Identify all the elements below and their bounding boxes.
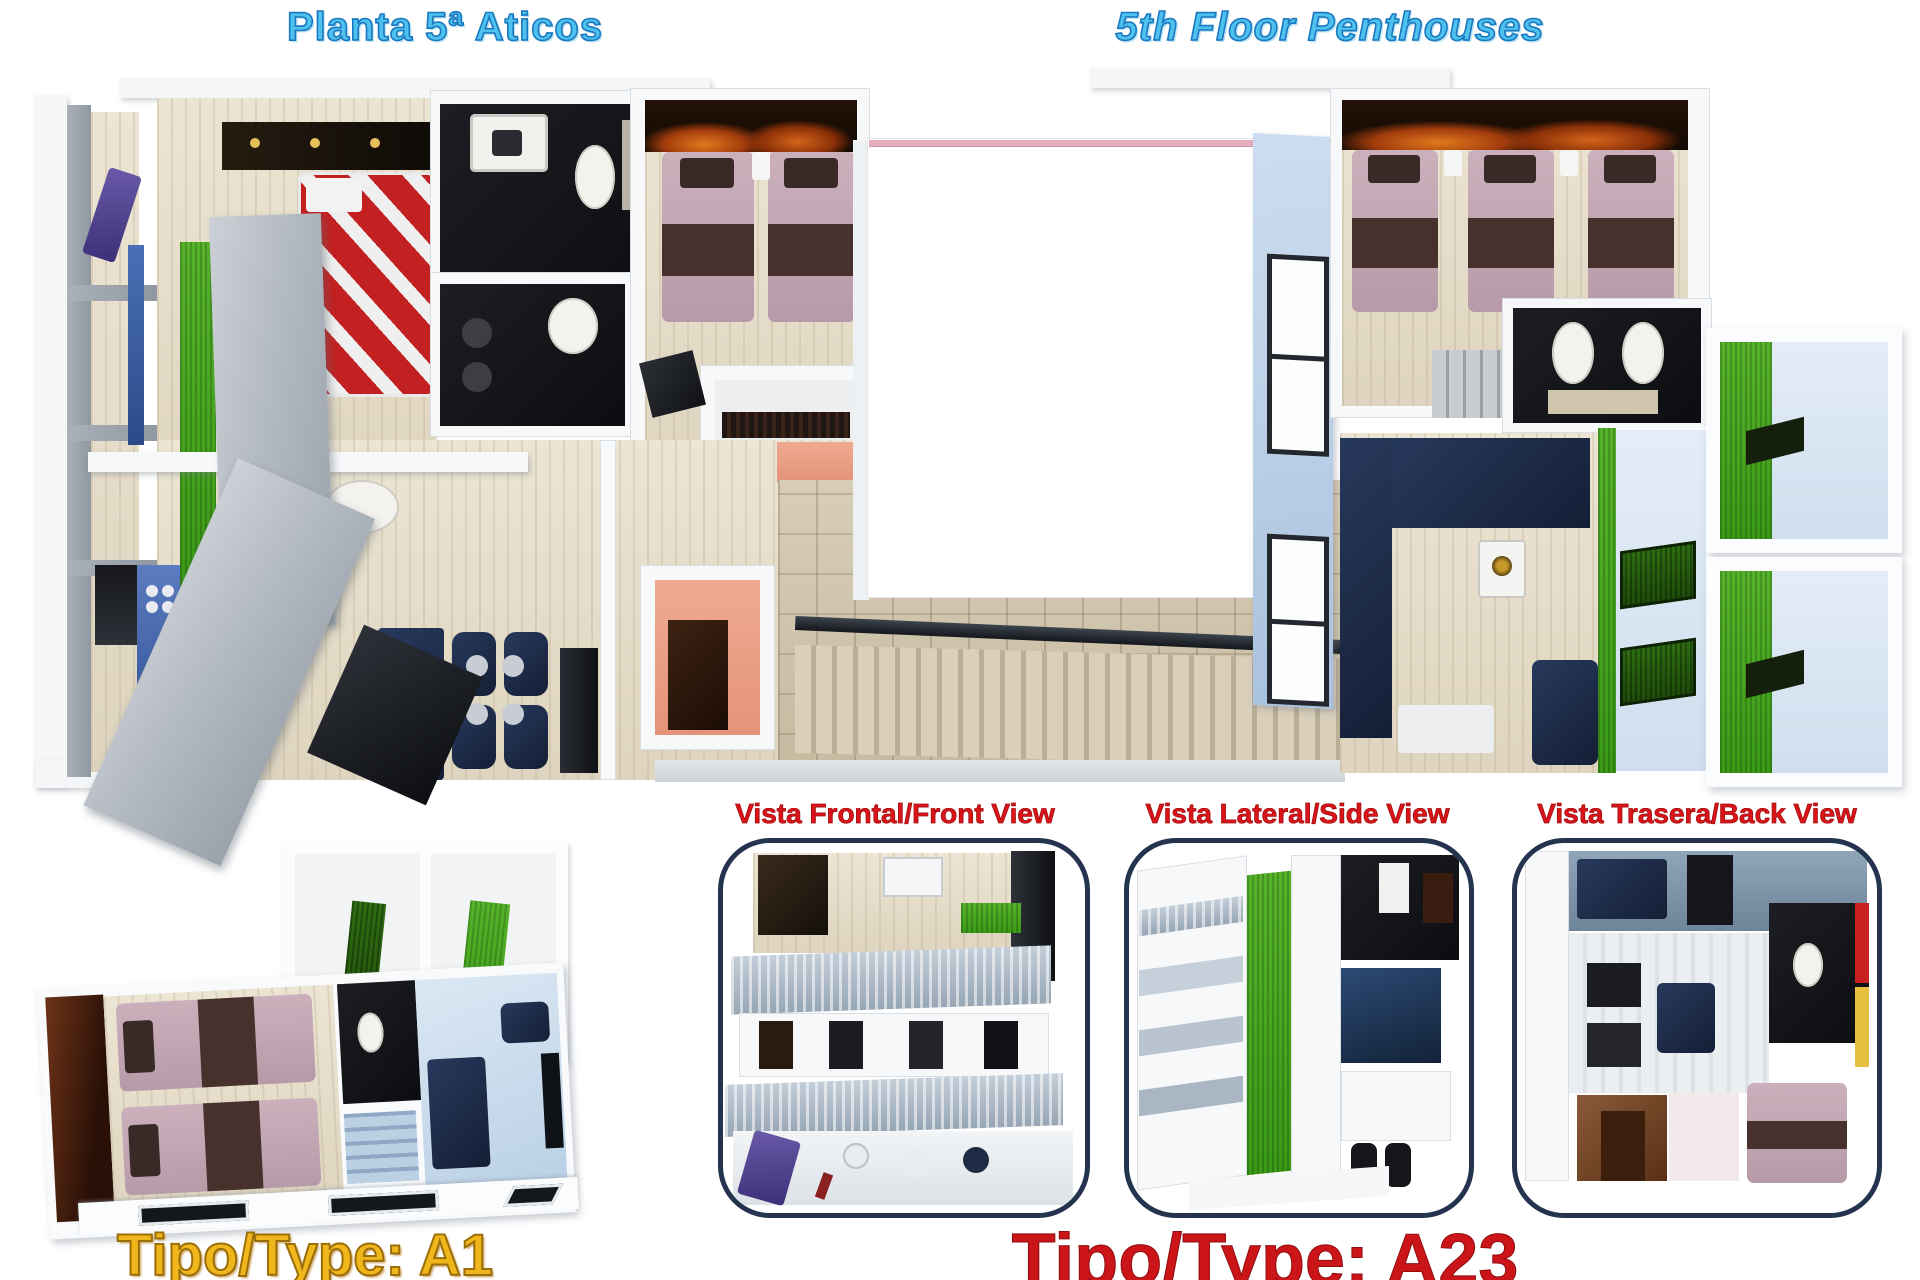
- a1-sofa: [427, 1057, 491, 1170]
- right-shoe-bench: [1398, 705, 1494, 753]
- bathroom-2-toilet: [548, 298, 598, 354]
- fv-upper-cabinet: [758, 855, 828, 935]
- back-view-panel: [1512, 838, 1882, 1218]
- garden-turf-edge: [1598, 428, 1616, 773]
- store-room-cabinet: [668, 620, 728, 730]
- fv-terrace-furniture: [843, 1143, 869, 1169]
- media-cabinet: [560, 648, 598, 773]
- west-outer-wall: [35, 95, 67, 785]
- right-bed-3-pillow: [1604, 155, 1656, 183]
- page-title-spanish: Planta 5ª Aticos: [285, 5, 605, 50]
- a1-window-2-icon: [328, 1190, 439, 1216]
- fv-balcony-slab-2: [725, 1073, 1063, 1137]
- sv-white-room: [1341, 1071, 1451, 1141]
- north-wall-right-apartment: [1090, 68, 1450, 88]
- a1-bed-2-stripe: [203, 1100, 264, 1191]
- bv-bed-stripe: [1747, 1121, 1847, 1149]
- bathroom-2: [440, 284, 625, 426]
- menu-panel-logos: [146, 585, 158, 597]
- terrace-box-1: [1706, 328, 1902, 553]
- side-view-panel: [1124, 838, 1474, 1218]
- dining-chair-2: [504, 632, 548, 696]
- bv-dining-blocks: [1587, 963, 1641, 1007]
- window-1-icon: [1267, 254, 1329, 457]
- bv-pink-floor: [1669, 1093, 1739, 1181]
- bv-sofa: [1657, 983, 1715, 1053]
- a1-window-3-icon: [503, 1184, 563, 1207]
- bv-toilet: [1793, 943, 1823, 987]
- bathroom-1-basin: [492, 130, 522, 156]
- sv-core-wall: [1291, 855, 1341, 1195]
- sv-top-fixtures: [1379, 863, 1409, 913]
- right-bed-1-pillow: [1368, 155, 1420, 183]
- right-bed-2-pillow: [1484, 155, 1536, 183]
- a1-bed-1-stripe: [198, 997, 259, 1088]
- right-bed-1-stripe: [1352, 218, 1438, 268]
- bv-bed-mauve: [1747, 1083, 1847, 1183]
- right-lounge-chairs: [1532, 660, 1598, 765]
- bv-navy-bed: [1577, 859, 1667, 919]
- page-title-english: 5th Floor Penthouses: [1090, 5, 1570, 50]
- terrace-glass-rail: [128, 245, 144, 445]
- type-a23-label: Tipo/Type: A23: [920, 1224, 1610, 1280]
- twin-bed-1: [662, 152, 754, 322]
- dining-chair-4: [504, 705, 548, 769]
- right-bathroom-mat: [1548, 390, 1658, 414]
- fv-balcony-slab-1: [731, 945, 1051, 1014]
- mirrored-wardrobe: [1432, 350, 1502, 418]
- west-terrace-wall: [67, 105, 91, 777]
- a1-bed-2-pillow: [128, 1124, 161, 1177]
- right-bedroom-headboard-art: [1342, 100, 1688, 150]
- a1-bed-2: [121, 1097, 321, 1195]
- back-view-label: Vista Trasera/Back View: [1508, 798, 1886, 830]
- a1-armchairs: [500, 1001, 550, 1043]
- bv-accent-red-yellow: [1855, 903, 1869, 983]
- twin-bed-1-stripe: [662, 224, 754, 276]
- twin-bedroom-headboard-art: [645, 100, 857, 152]
- side-view-label: Vista Lateral/Side View: [1120, 798, 1475, 830]
- bv-left-wall: [1525, 851, 1569, 1181]
- main-floorplan: [0, 60, 1920, 800]
- a1-bed-1-pillow: [123, 1020, 156, 1073]
- fv-doorways: [759, 1021, 793, 1069]
- right-bathroom-toilet: [1552, 322, 1594, 384]
- right-nightstands: [1444, 150, 1462, 176]
- courtyard-void: [867, 138, 1255, 598]
- terrace-box-2: [1706, 557, 1902, 787]
- right-kitchen-counter-top: [1390, 438, 1590, 528]
- bathroom-1-toilet: [575, 145, 615, 209]
- twin-nightstand: [752, 152, 770, 180]
- front-view-label: Vista Frontal/Front View: [695, 798, 1095, 830]
- window-2-icon: [1267, 534, 1329, 707]
- garden-planter-1: [1620, 541, 1696, 610]
- right-bathroom-bidet: [1622, 322, 1664, 384]
- master-bed-pillow: [306, 178, 362, 212]
- right-bed-1: [1352, 150, 1438, 312]
- a1-bed-1: [116, 994, 316, 1092]
- twin-bed-2-stripe: [768, 224, 856, 276]
- type-a1-floorplan: [25, 838, 570, 1233]
- sv-turf-strip: [1247, 871, 1291, 1176]
- a1-hall-cabinet: [344, 1110, 420, 1184]
- bathroom-2-sinks: [462, 318, 492, 348]
- kitchen-coffee-machine: [95, 565, 137, 645]
- right-kitchen-counter-side: [1340, 438, 1392, 738]
- twin-bed-2: [768, 152, 856, 322]
- right-bed-2-stripe: [1468, 218, 1554, 268]
- front-view-panel: [718, 838, 1090, 1218]
- stair-lower-floor: [655, 760, 1345, 782]
- twin-bed-2-pillow: [784, 158, 838, 188]
- garden-wall-slab: [1598, 428, 1708, 773]
- twin-bed-1-pillow: [680, 158, 734, 188]
- garden-planter-2: [1620, 638, 1696, 707]
- washing-machine-door: [1492, 556, 1512, 576]
- right-bed-2: [1468, 150, 1554, 312]
- a1-unit-body: [37, 962, 576, 1239]
- type-a1-label: Tipo/Type: A1: [85, 1222, 525, 1280]
- right-bed-3-stripe: [1588, 218, 1674, 268]
- right-bed-3: [1588, 150, 1674, 312]
- closet-clothes-rail: [722, 412, 850, 438]
- living-partition-wall: [600, 440, 616, 780]
- brochure-page: Planta 5ª Aticos 5th Floor Penthouses: [0, 0, 1920, 1280]
- right-apartment-west-wall: [1253, 133, 1333, 709]
- wardrobe-lights: [250, 138, 260, 148]
- bv-door: [1601, 1111, 1645, 1181]
- fv-upper-table: [883, 857, 943, 897]
- bv-tall-unit: [1687, 855, 1733, 925]
- sv-blue-room: [1341, 968, 1441, 1063]
- fv-turf-patch: [961, 903, 1021, 933]
